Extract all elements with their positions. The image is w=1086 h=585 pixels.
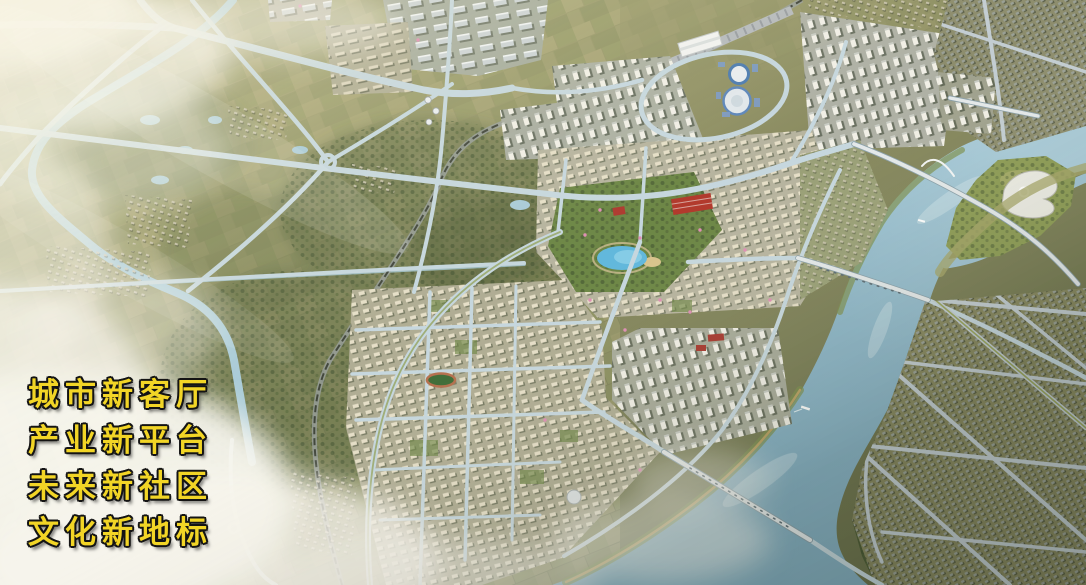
slogan-line-1: 城市新客厅 [28,372,213,418]
slogan-line-4: 文化新地标 [28,510,213,556]
slogan-line-2: 产业新平台 [28,418,213,464]
slogan-overlay: 城市新客厅 产业新平台 未来新社区 文化新地标 [28,372,213,556]
aerial-masterplan-render: 城市新客厅 产业新平台 未来新社区 文化新地标 [0,0,1086,585]
slogan-line-3: 未来新社区 [28,464,213,510]
